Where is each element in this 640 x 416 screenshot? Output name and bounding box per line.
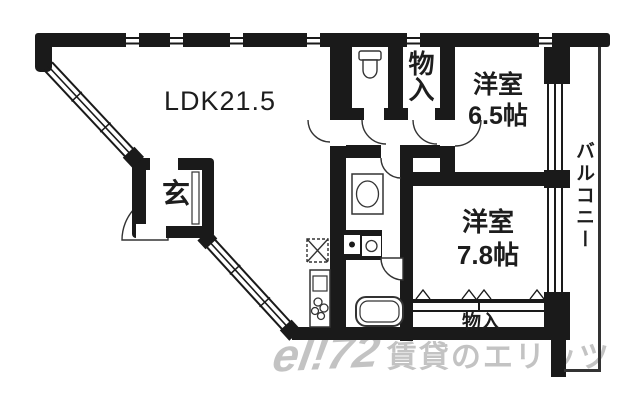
wall-toilet-bottom — [352, 108, 364, 120]
wall-toilet-hinge — [384, 108, 388, 120]
room-size: 6.5帖 — [448, 101, 548, 132]
storage-upper-label: 物入 — [406, 50, 434, 112]
wall-balcony-column — [551, 327, 566, 377]
sliding-door-marks-icon — [416, 290, 544, 299]
western-room-7-8-label: 洋室 7.8帖 — [436, 206, 540, 272]
washbasin-icon — [352, 174, 383, 214]
vent-hatch-icon — [307, 239, 328, 262]
wall-bottom — [292, 327, 556, 340]
diagonal-window-lower — [197, 230, 301, 341]
floorplan: LDK21.5 洋室 6.5帖 洋室 7.8帖 物入 玄 バルコニー 物入 el… — [0, 0, 640, 416]
floorplan-drawing — [0, 0, 640, 416]
room-size: 7.8帖 — [436, 239, 540, 272]
bathtub-icon — [356, 297, 403, 326]
balcony-label: バルコニー — [570, 141, 597, 269]
wall-storage-bottom-right — [435, 108, 440, 120]
wall-ldk-upper — [330, 47, 352, 120]
wall-toilet-storage-divider — [388, 47, 403, 120]
western-room-6-5-label: 洋室 6.5帖 — [448, 70, 548, 132]
diagonal-window-upper — [42, 61, 144, 168]
door-swing-arc-icon — [362, 120, 386, 144]
wall-top — [35, 33, 610, 47]
entrance-label: 玄 — [157, 172, 195, 212]
room-name: 洋室 — [436, 206, 540, 239]
wall-pier-middle — [544, 170, 570, 188]
wall-hallway-bottom-left — [346, 145, 381, 158]
door-swing-arc-icon — [308, 120, 330, 142]
entrance-top-gap — [150, 158, 178, 170]
door-swing-arc-icon — [413, 120, 437, 144]
wall-left-corner — [35, 33, 52, 72]
toilet-icon — [359, 51, 381, 78]
bath-door-swing-arc-icon — [381, 258, 403, 280]
closet-lower-label: 物入 — [452, 307, 510, 334]
entrance-door-gap — [136, 224, 166, 238]
ldk-room-label: LDK21.5 — [150, 86, 290, 117]
door-swing-arc-icon — [381, 158, 401, 178]
wall-room1-room2-divider — [413, 172, 553, 186]
room-name: 洋室 — [448, 70, 548, 101]
washing-machine-icon — [344, 235, 381, 256]
